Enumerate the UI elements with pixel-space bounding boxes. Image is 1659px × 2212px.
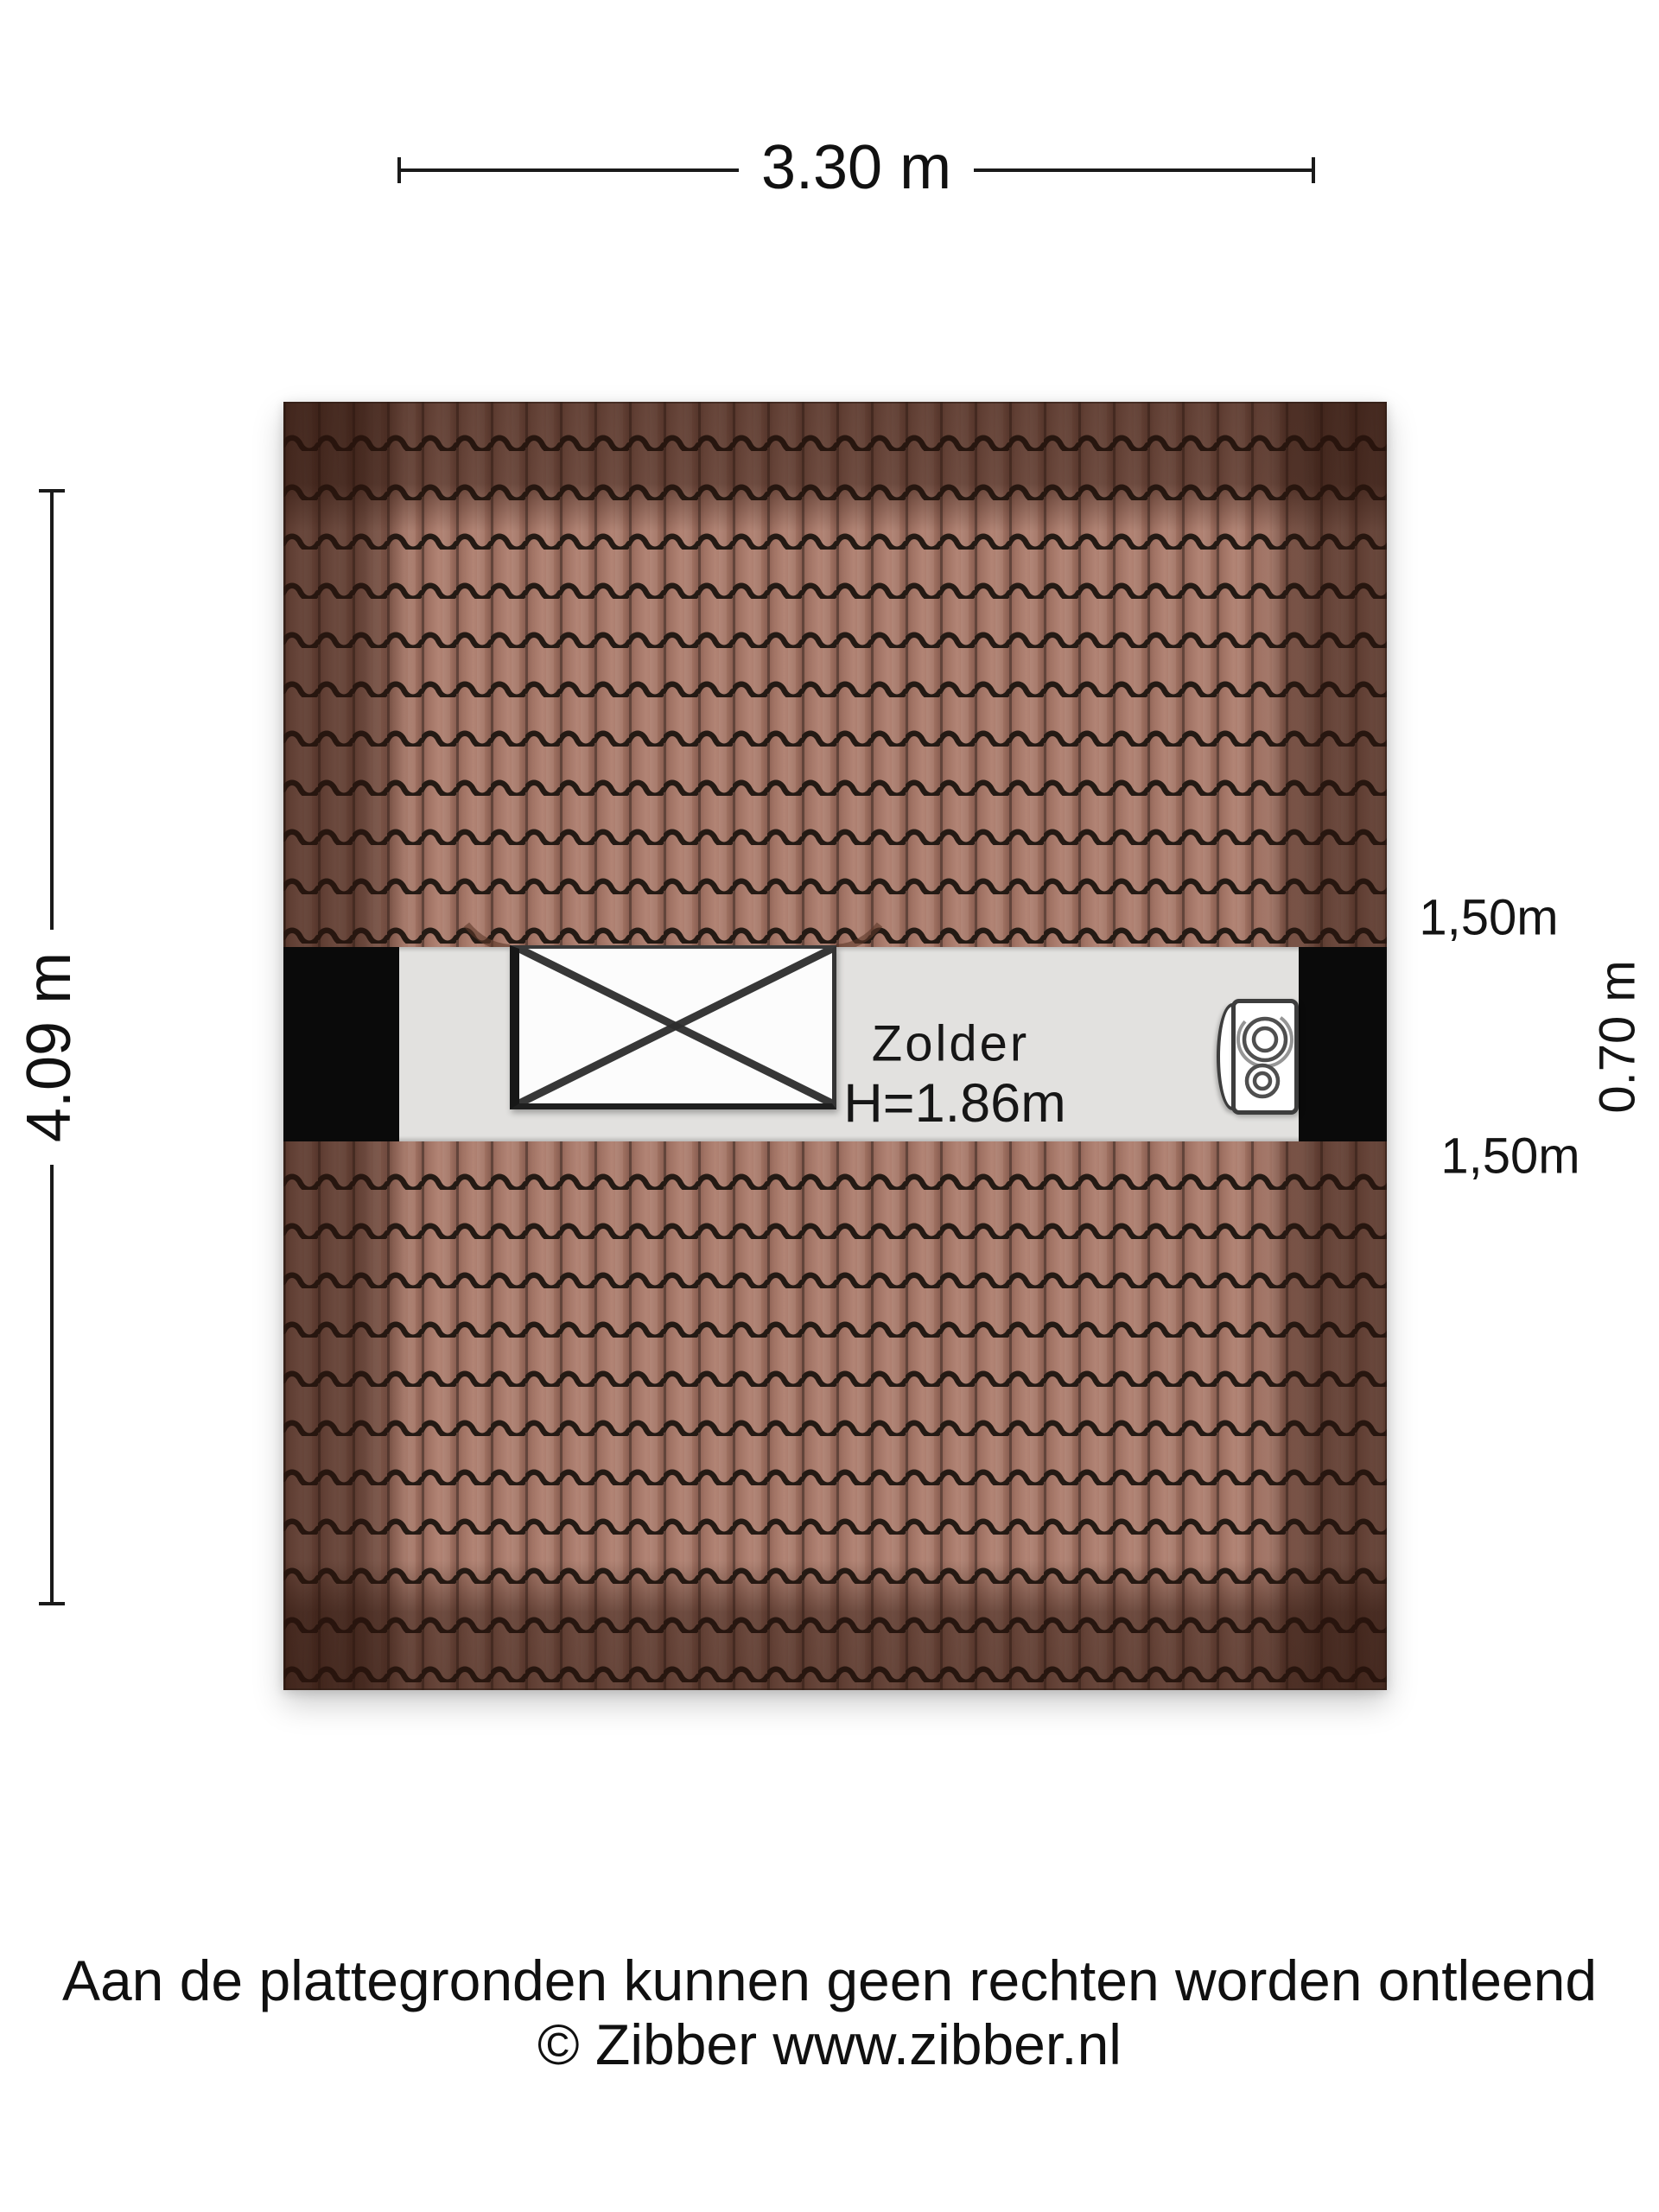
boiler-unit	[1217, 999, 1299, 1115]
boiler-icon	[1236, 1003, 1294, 1110]
dimension-height: 4.09 m	[28, 489, 76, 1605]
wall-left	[283, 947, 399, 1141]
dimension-line	[974, 168, 1312, 172]
dimension-line	[50, 1165, 54, 1602]
segment-label-top: 1,50m	[1419, 889, 1558, 947]
dimension-tick	[1312, 157, 1315, 183]
room-height-label: H=1.86m	[843, 1072, 1065, 1135]
roof-window-symbol	[510, 945, 836, 1109]
footer-copyright: © Zibber www.zibber.nl	[0, 2013, 1659, 2077]
dimension-line	[401, 168, 739, 172]
floorplan-canvas: 3.30 m 4.09 m	[0, 0, 1659, 2212]
dimension-height-label: 4.09 m	[18, 930, 80, 1165]
wall-right	[1299, 947, 1387, 1141]
boiler-body	[1231, 999, 1299, 1115]
dimension-tick	[39, 489, 65, 493]
room-name-label: Zolder	[872, 1015, 1029, 1073]
segment-label-bottom: 1,50m	[1440, 1128, 1580, 1185]
dimension-line	[50, 493, 54, 930]
footer: Aan de plattegronden kunnen geen rechten…	[0, 1949, 1659, 2077]
dimension-width: 3.30 m	[397, 146, 1315, 194]
dimension-width-label: 3.30 m	[739, 137, 974, 199]
dimension-tick	[39, 1602, 65, 1605]
roof-plan: Zolder H=1.86m	[283, 402, 1387, 1690]
window-cross-icon	[519, 949, 832, 1103]
segment-label-middle: 0.70 m	[1589, 960, 1647, 1113]
footer-disclaimer: Aan de plattegronden kunnen geen rechten…	[0, 1949, 1659, 2013]
